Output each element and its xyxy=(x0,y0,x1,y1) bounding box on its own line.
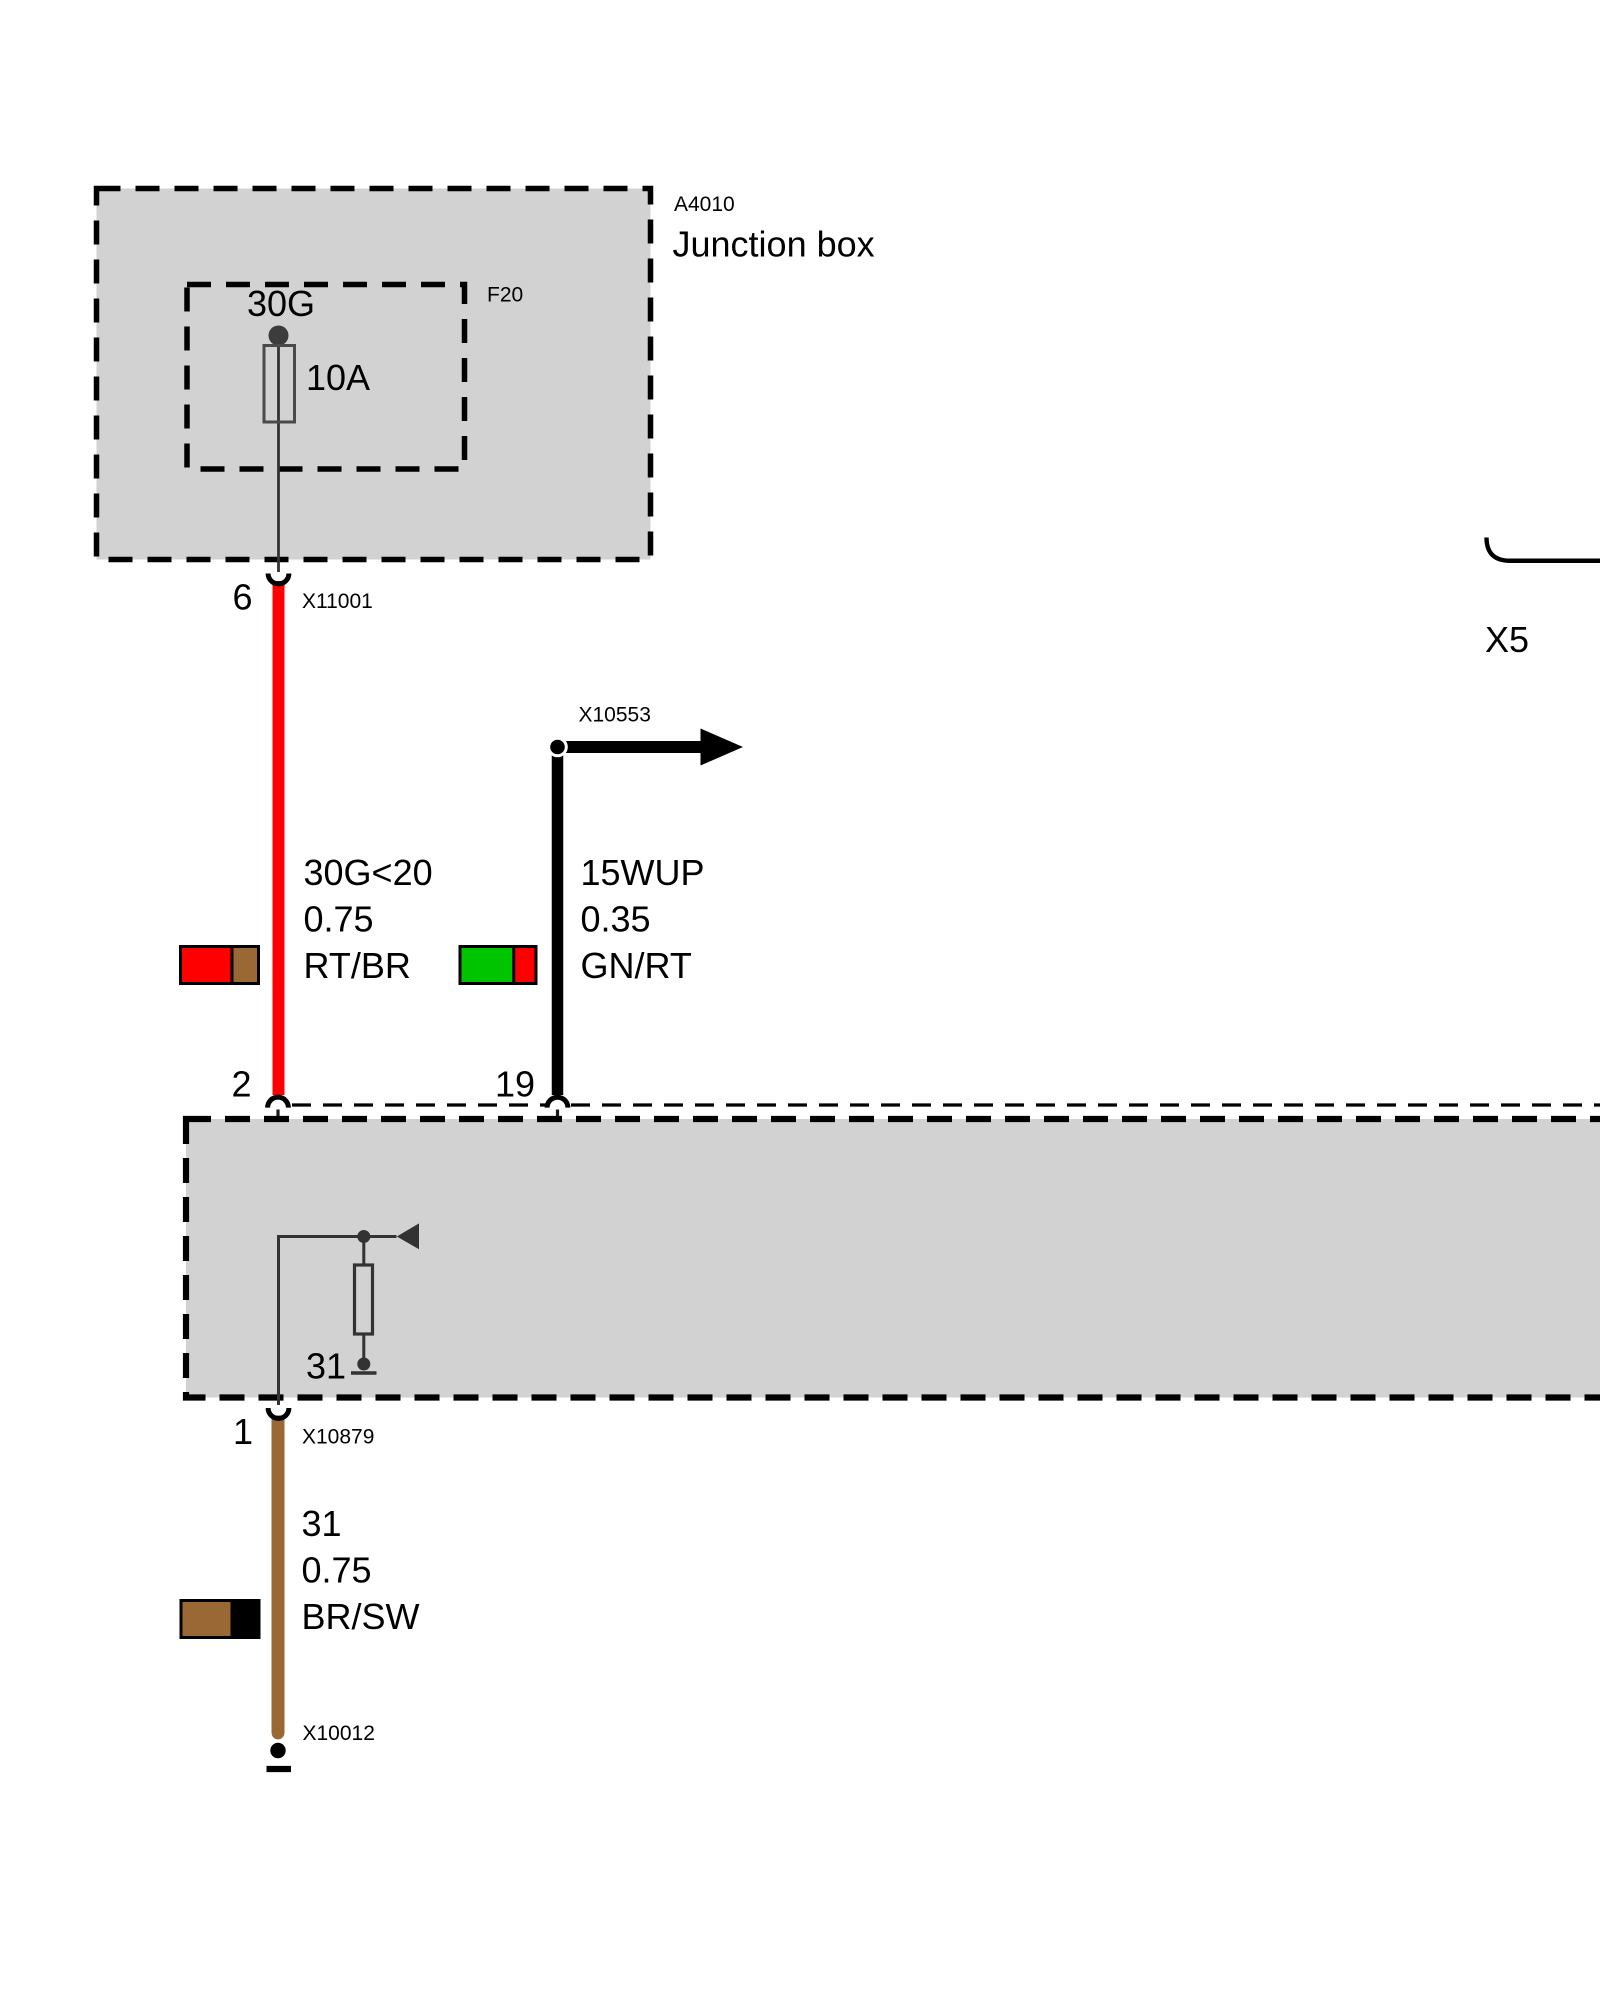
svg-text:RT/BR: RT/BR xyxy=(304,945,411,986)
svg-text:0.75: 0.75 xyxy=(304,899,374,940)
svg-text:31: 31 xyxy=(302,1503,342,1544)
svg-text:X5: X5 xyxy=(1485,619,1529,660)
svg-text:0.75: 0.75 xyxy=(302,1550,372,1591)
svg-text:A4010: A4010 xyxy=(674,193,735,216)
svg-text:F20: F20 xyxy=(487,284,523,307)
svg-text:6: 6 xyxy=(232,577,252,618)
svg-text:30G: 30G xyxy=(247,283,315,324)
svg-text:31: 31 xyxy=(306,1346,346,1387)
svg-text:19: 19 xyxy=(495,1064,535,1105)
svg-text:0.35: 0.35 xyxy=(581,899,651,940)
svg-text:1: 1 xyxy=(233,1411,253,1452)
svg-text:10A: 10A xyxy=(306,357,370,398)
svg-text:BR/SW: BR/SW xyxy=(302,1596,420,1637)
svg-text:15WUP: 15WUP xyxy=(581,852,705,893)
svg-text:X10012: X10012 xyxy=(303,1722,375,1745)
svg-text:Junction box: Junction box xyxy=(673,224,875,265)
svg-text:2: 2 xyxy=(231,1064,251,1105)
svg-text:X10879: X10879 xyxy=(302,1426,374,1449)
svg-text:GN/RT: GN/RT xyxy=(581,945,692,986)
svg-text:X11001: X11001 xyxy=(302,590,373,613)
svg-text:30G<20: 30G<20 xyxy=(304,852,433,893)
svg-text:X10553: X10553 xyxy=(579,704,651,727)
